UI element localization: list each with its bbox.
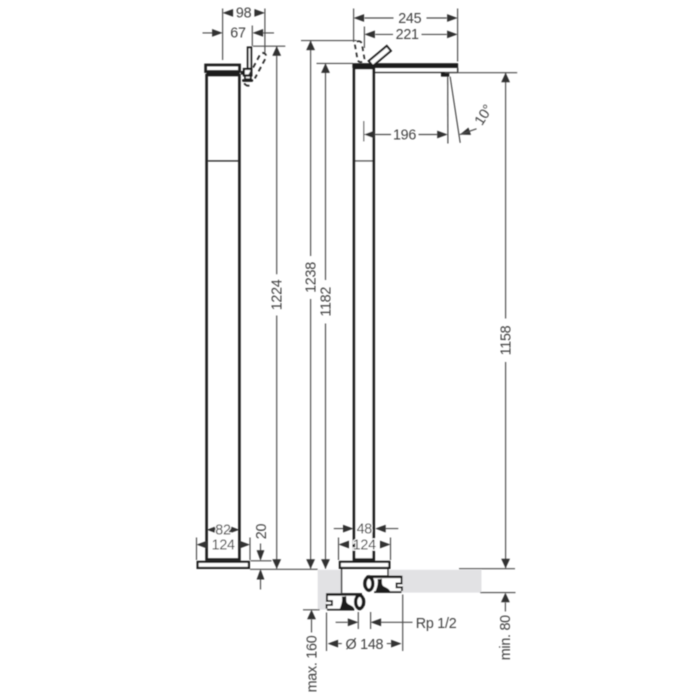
svg-text:1182: 1182 xyxy=(319,287,335,317)
svg-text:10°: 10° xyxy=(472,102,497,128)
svg-text:Ø 148: Ø 148 xyxy=(346,637,384,653)
svg-text:1158: 1158 xyxy=(499,325,515,355)
svg-text:67: 67 xyxy=(230,26,246,42)
svg-text:221: 221 xyxy=(396,27,419,43)
svg-text:Rp 1/2: Rp 1/2 xyxy=(416,616,457,632)
svg-text:1224: 1224 xyxy=(270,279,286,310)
svg-text:196: 196 xyxy=(393,127,416,143)
svg-text:1238: 1238 xyxy=(304,262,320,293)
svg-text:124: 124 xyxy=(353,537,376,553)
svg-text:82: 82 xyxy=(215,523,231,539)
svg-text:max. 160: max. 160 xyxy=(304,635,320,692)
svg-text:98: 98 xyxy=(236,6,252,22)
svg-text:48: 48 xyxy=(357,521,373,537)
svg-text:124: 124 xyxy=(212,537,235,553)
svg-text:min. 80: min. 80 xyxy=(498,615,514,660)
svg-text:245: 245 xyxy=(398,11,421,27)
svg-text:20: 20 xyxy=(254,524,270,540)
